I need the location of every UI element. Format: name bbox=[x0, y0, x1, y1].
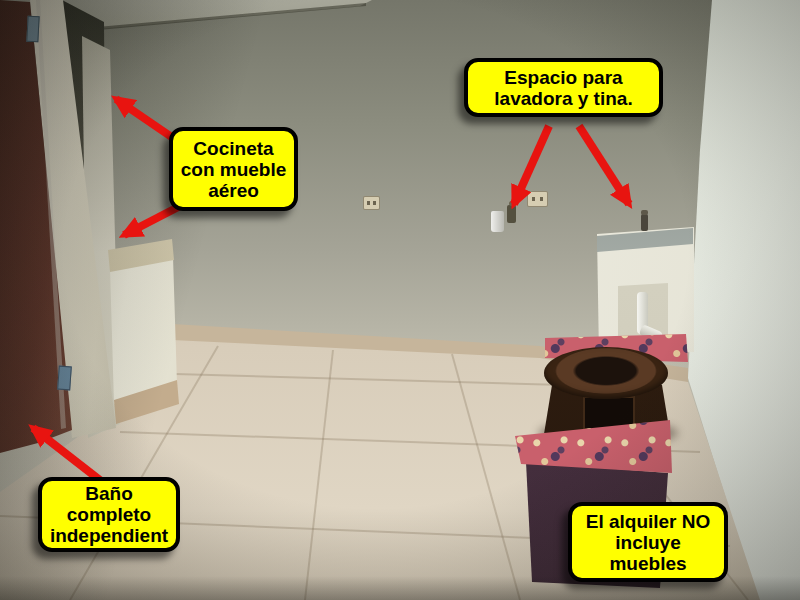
callout-bathroom: Baño completo independient bbox=[38, 477, 180, 552]
callout-kitchenette: Cocineta con mueble aéreo bbox=[169, 127, 298, 211]
arrow-to-laundry-sink bbox=[579, 126, 629, 204]
room-photo: Espacio para lavadora y tina. Cocineta c… bbox=[0, 0, 800, 600]
callout-furniture-notice: El alquiler NO incluye muebles bbox=[568, 502, 728, 582]
callout-laundry-space: Espacio para lavadora y tina. bbox=[464, 58, 663, 117]
arrow-to-bathroom-door bbox=[33, 428, 101, 481]
arrow-to-upper-cabinet bbox=[116, 99, 176, 140]
arrow-to-laundry-valve bbox=[514, 126, 549, 204]
